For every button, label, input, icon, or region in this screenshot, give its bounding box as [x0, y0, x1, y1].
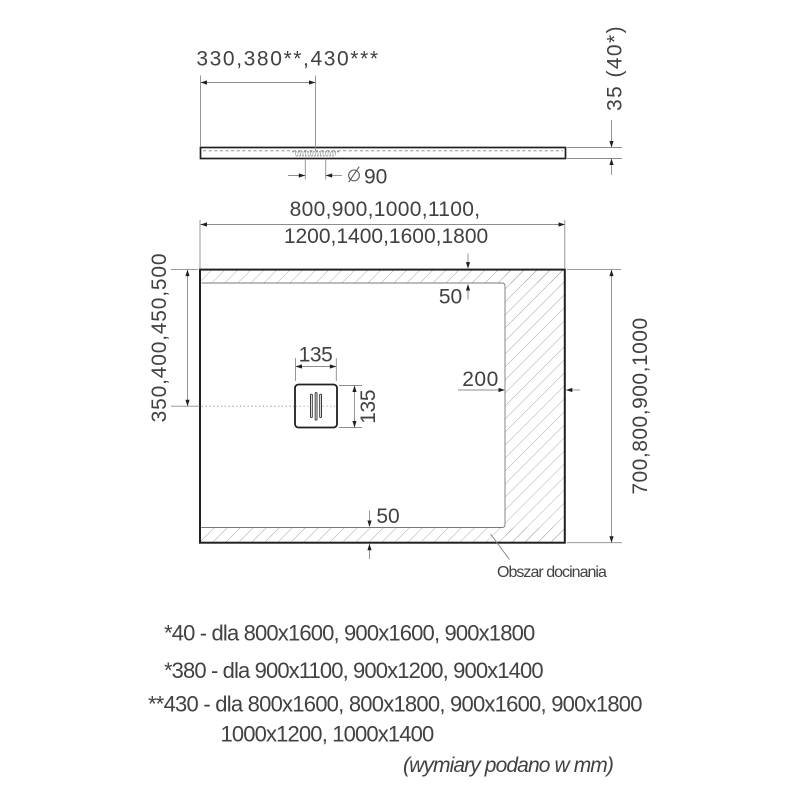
svg-text:35 (40*): 35 (40*) [604, 25, 627, 111]
svg-text:1000x1200, 1000x1400: 1000x1200, 1000x1400 [221, 722, 435, 747]
svg-text:90: 90 [364, 166, 387, 189]
svg-text:50: 50 [439, 286, 462, 309]
svg-text:1200,1400,1600,1800: 1200,1400,1600,1800 [284, 225, 488, 248]
svg-text:135: 135 [299, 343, 333, 366]
svg-text:Obszar docinania: Obszar docinania [497, 564, 607, 581]
svg-text:350,400,450,500: 350,400,450,500 [148, 253, 171, 423]
svg-text:135: 135 [357, 390, 380, 424]
svg-text:(wymiary podano w mm): (wymiary podano w mm) [403, 754, 613, 777]
svg-text:**430 - dla 800x1600, 800x1800: **430 - dla 800x1600, 800x1800, 900x1600… [148, 692, 642, 717]
svg-text:50: 50 [376, 505, 399, 528]
svg-text:200: 200 [462, 368, 499, 391]
svg-text:*380 - dla 900x1100, 900x1200,: *380 - dla 900x1100, 900x1200, 900x1400 [164, 658, 543, 683]
svg-text:800,900,1000,1100,: 800,900,1000,1100, [290, 198, 481, 221]
svg-text:330,380**,430***: 330,380**,430*** [196, 48, 379, 71]
svg-text:700,800,900,1000: 700,800,900,1000 [629, 317, 652, 494]
svg-text:*40 - dla 800x1600, 900x1600,: *40 - dla 800x1600, 900x1600, 900x1800 [164, 621, 535, 646]
